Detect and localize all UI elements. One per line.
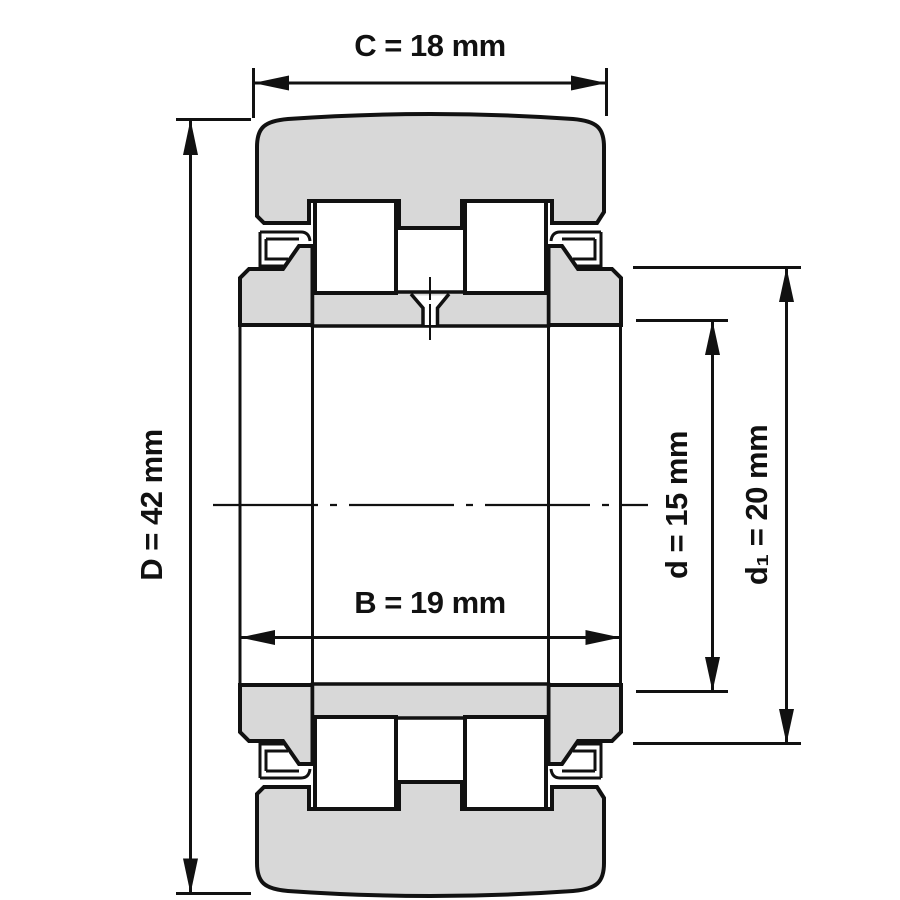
dimension-C	[254, 68, 607, 118]
roller	[465, 201, 546, 293]
arrowhead	[183, 859, 198, 894]
arrowhead	[240, 630, 275, 645]
arrowhead	[254, 76, 290, 91]
bearing-drawing-svg: C = 18 mm D = 42 mm B = 19 mm d = 15 mm …	[0, 0, 900, 900]
dimension-label-d1: d₁ = 20 mm	[739, 425, 774, 585]
dimension-label-C: C = 18 mm	[354, 28, 505, 63]
dimension-label-D: D = 42 mm	[134, 429, 169, 580]
outer-ring	[257, 114, 604, 228]
bearing-bottom-half	[240, 684, 621, 896]
arrowhead	[705, 657, 720, 692]
dimension-B	[240, 630, 621, 645]
roller	[315, 201, 396, 293]
arrowhead	[705, 321, 720, 356]
dimension-label-d: d = 15 mm	[659, 431, 694, 579]
arrowhead	[586, 630, 621, 645]
arrowhead	[779, 709, 794, 744]
arrowhead	[183, 120, 198, 156]
arrowhead	[571, 76, 607, 91]
technical-drawing-canvas: C = 18 mm D = 42 mm B = 19 mm d = 15 mm …	[0, 0, 900, 900]
dimension-label-B: B = 19 mm	[354, 585, 505, 620]
arrowhead	[779, 268, 794, 303]
